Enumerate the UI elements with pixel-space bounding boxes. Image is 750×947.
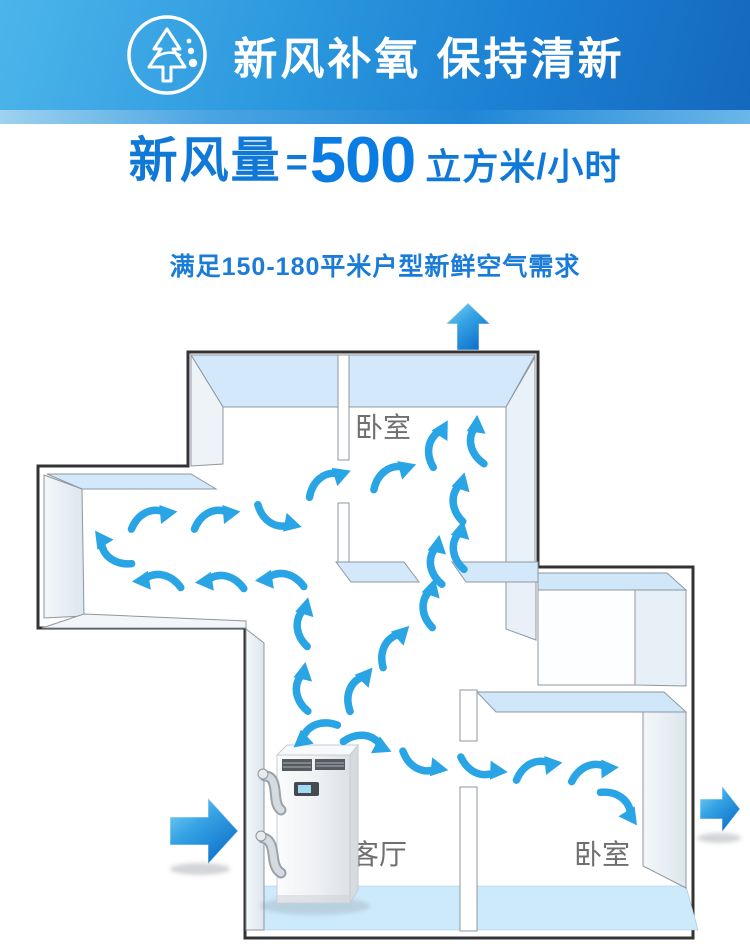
small-room-floor <box>538 590 635 685</box>
wall-e-lower-face <box>643 712 686 888</box>
air-out-top-arrow <box>446 303 490 350</box>
wall-top-face <box>191 355 535 407</box>
wall-divider-top <box>338 355 349 460</box>
unit-grille <box>315 759 345 770</box>
porch-left-face <box>44 475 84 618</box>
wall-f-post <box>460 690 477 741</box>
unit-front <box>277 755 350 903</box>
unit-grille <box>282 759 312 771</box>
wall-g <box>460 787 477 931</box>
room-label-bedroom-right: 卧室 <box>574 839 630 870</box>
wall-e-upper-face <box>635 590 686 686</box>
page-root: 新风补氧 保持清新 新风量 = 500 立方米/小时 满足150-180平米户型… <box>0 0 750 947</box>
room-label-bedroom-top: 卧室 <box>355 412 411 443</box>
pipe-connector <box>256 831 266 841</box>
air-out-right-arrow <box>697 786 741 843</box>
room-label-living: 客厅 <box>351 839 407 870</box>
unit-display-screen <box>298 785 311 793</box>
pipe-connector <box>258 769 268 779</box>
wall-divider-mid <box>338 503 349 562</box>
unit-side-face <box>350 745 358 903</box>
wall-d-band <box>538 573 686 590</box>
unit-top-face <box>277 745 358 755</box>
wall-l-band <box>336 562 419 582</box>
floorplan-svg: 卧室 客厅 卧室 <box>0 0 750 947</box>
wall-f-band <box>477 692 686 712</box>
air-in-left-arrow <box>170 798 238 875</box>
